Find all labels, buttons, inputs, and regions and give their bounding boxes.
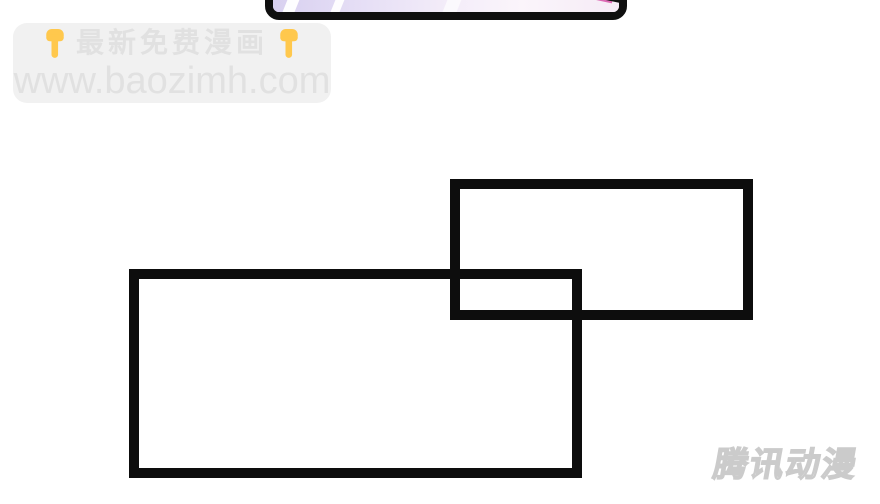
point-down-hand-icon xyxy=(275,26,303,60)
promo-watermark-banner: 最新免费漫画 www.baozimh.com xyxy=(13,23,331,103)
point-down-hand-icon xyxy=(41,26,69,60)
comic-frame-lower-left xyxy=(129,269,582,478)
publisher-watermark-logo: 腾讯动漫 xyxy=(710,443,878,487)
promo-website-url: www.baozimh.com xyxy=(14,62,331,100)
promo-headline-text: 最新免费漫画 xyxy=(76,29,268,57)
comic-panel-top-partial xyxy=(265,0,627,20)
comic-page: 最新免费漫画 www.baozimh.com 腾讯动漫 xyxy=(0,0,880,504)
promo-headline-row: 最新免费漫画 xyxy=(41,26,303,60)
